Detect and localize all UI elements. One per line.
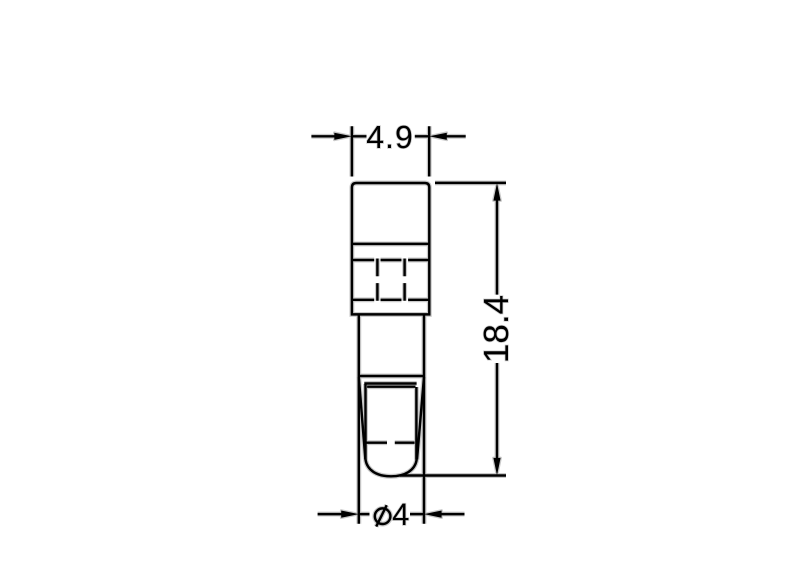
svg-text:4: 4 [392, 497, 409, 532]
svg-text:4.9: 4.9 [366, 119, 413, 155]
svg-text:18.4: 18.4 [477, 295, 516, 363]
